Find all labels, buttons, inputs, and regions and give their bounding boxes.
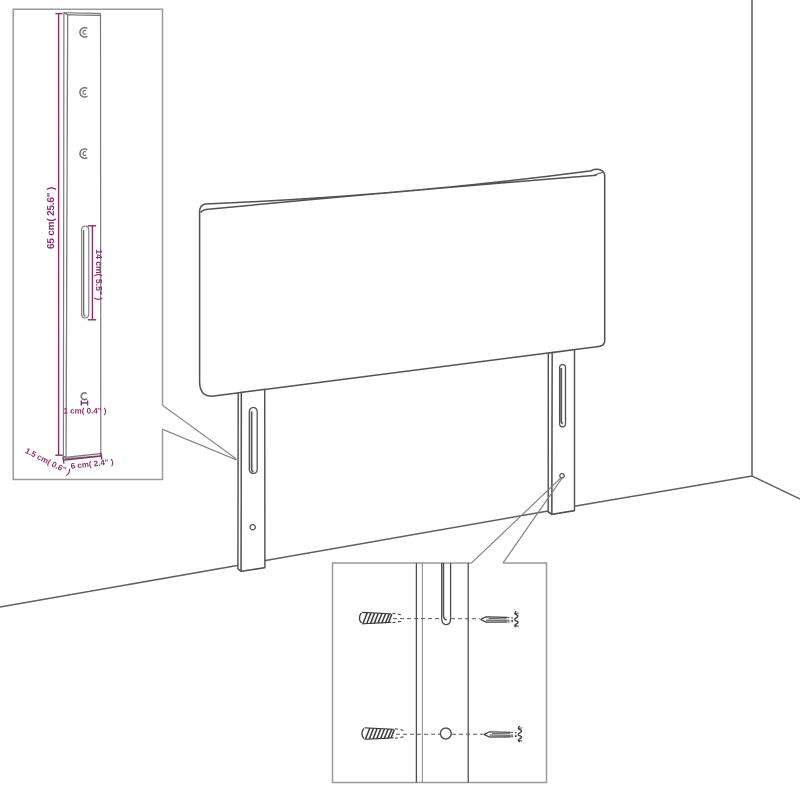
svg-text:65 cm( 25.6" ): 65 cm( 25.6" ) xyxy=(46,187,57,249)
svg-text:1 cm( 0.4" ): 1 cm( 0.4" ) xyxy=(63,407,106,416)
svg-text:14 cm( 5.5" ): 14 cm( 5.5" ) xyxy=(94,249,104,300)
